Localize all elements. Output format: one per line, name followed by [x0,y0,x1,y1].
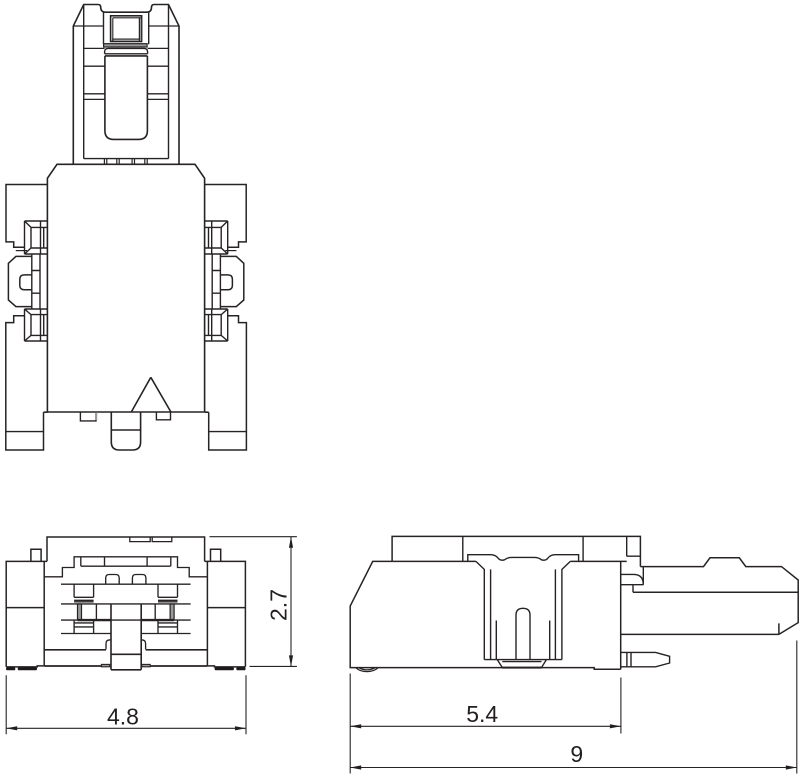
svg-text:4.8: 4.8 [107,704,139,730]
svg-text:9: 9 [570,741,583,767]
svg-text:5.4: 5.4 [466,701,498,727]
svg-text:2.7: 2.7 [265,589,291,621]
